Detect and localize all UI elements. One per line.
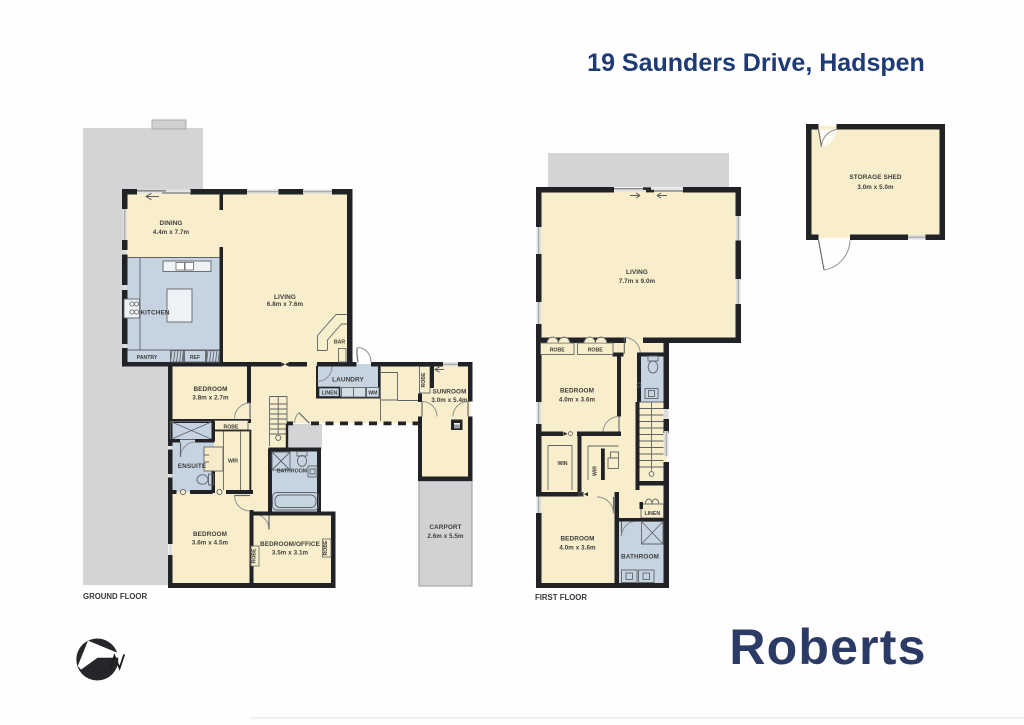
svg-text:6.8m x 7.6m: 6.8m x 7.6m — [267, 301, 304, 308]
svg-text:ROBE: ROBE — [224, 424, 240, 430]
svg-text:WIN: WIN — [557, 461, 567, 467]
svg-text:4.0m x 3.6m: 4.0m x 3.6m — [559, 397, 596, 404]
svg-text:STORAGE SHED: STORAGE SHED — [849, 174, 902, 181]
svg-text:PANTRY: PANTRY — [137, 355, 158, 361]
svg-text:19 Saunders Drive, Hadspen: 19 Saunders Drive, Hadspen — [587, 49, 925, 77]
svg-text:ROBE: ROBE — [550, 348, 566, 354]
svg-text:GROUND FLOOR: GROUND FLOOR — [83, 592, 147, 601]
svg-text:FIRST FLOOR: FIRST FLOOR — [535, 593, 587, 602]
svg-text:LIVING: LIVING — [626, 269, 648, 276]
svg-text:WIR: WIR — [228, 459, 238, 465]
svg-text:BEDROOM: BEDROOM — [193, 386, 227, 393]
svg-text:2.6m x 5.5m: 2.6m x 5.5m — [427, 533, 464, 540]
svg-text:BEDROOM: BEDROOM — [560, 388, 594, 395]
svg-text:3.0m x 5.4m: 3.0m x 5.4m — [431, 397, 468, 404]
svg-text:BATHROOM: BATHROOM — [277, 469, 307, 475]
svg-text:KITCHEN: KITCHEN — [140, 310, 169, 317]
svg-text:BEDROOM: BEDROOM — [193, 531, 227, 538]
svg-text:ENSUITE: ENSUITE — [178, 463, 207, 470]
svg-text:7.7m x 9.0m: 7.7m x 9.0m — [619, 278, 656, 285]
svg-text:BATHROOM: BATHROOM — [621, 554, 659, 561]
svg-text:LAUNDRY: LAUNDRY — [332, 377, 364, 384]
svg-text:SUNROOM: SUNROOM — [432, 388, 466, 395]
svg-text:4.4m x 7.7m: 4.4m x 7.7m — [153, 229, 190, 236]
svg-text:ROBE: ROBE — [251, 548, 257, 564]
svg-text:BEDROOM: BEDROOM — [560, 536, 594, 543]
svg-text:ROBE: ROBE — [421, 372, 427, 388]
svg-text:3.5m x 3.1m: 3.5m x 3.1m — [272, 550, 309, 557]
svg-text:WIR: WIR — [593, 466, 599, 476]
svg-text:LIVING: LIVING — [274, 294, 296, 301]
svg-text:ROBE: ROBE — [588, 348, 604, 354]
svg-text:3.0m x 5.0m: 3.0m x 5.0m — [857, 184, 894, 191]
svg-text:ROBE: ROBE — [323, 540, 329, 556]
svg-text:CARPORT: CARPORT — [429, 524, 461, 531]
svg-text:BAR: BAR — [334, 340, 345, 346]
svg-text:4.0m x 3.6m: 4.0m x 3.6m — [559, 545, 596, 552]
svg-text:WM: WM — [368, 391, 377, 397]
svg-text:3.8m x 2.7m: 3.8m x 2.7m — [192, 395, 229, 402]
svg-text:DINING: DINING — [160, 220, 183, 227]
svg-text:3.6m x 4.5m: 3.6m x 4.5m — [192, 540, 229, 547]
svg-text:REF: REF — [190, 355, 200, 361]
svg-text:LINEN: LINEN — [322, 391, 338, 397]
svg-text:BEDROOM/OFFICE: BEDROOM/OFFICE — [260, 541, 321, 548]
svg-text:LINEN: LINEN — [645, 511, 661, 517]
svg-text:Roberts: Roberts — [729, 619, 926, 675]
